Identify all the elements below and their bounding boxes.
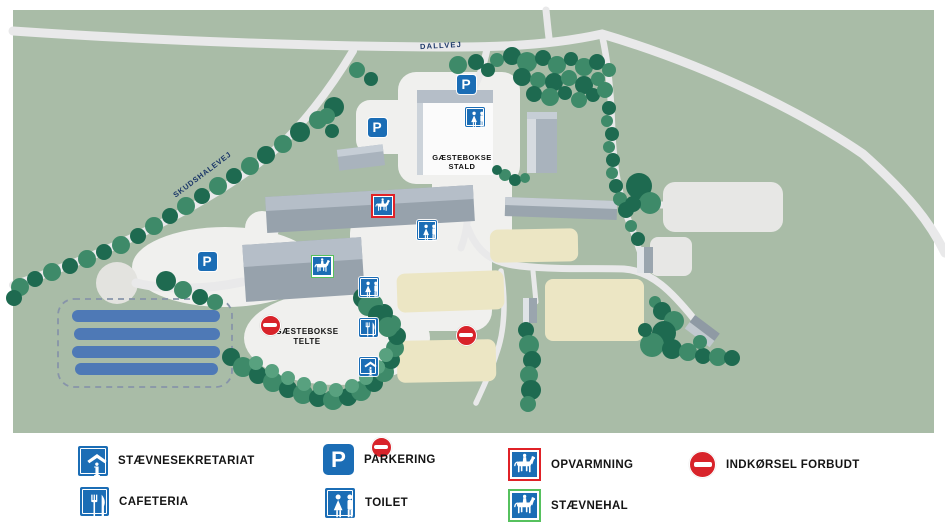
opvarmning-horse-sign-icon — [508, 448, 541, 481]
cafeteria-legend-icon — [80, 487, 109, 516]
parking-sign-icon: P — [323, 444, 354, 475]
info-sign-icon: i — [78, 446, 108, 476]
info-legend-icon: i — [78, 446, 108, 476]
parking-legend-icon: P — [323, 444, 354, 475]
staevnehal-legend-icon — [508, 489, 541, 522]
svg-text:i: i — [93, 460, 100, 480]
legend-item-opvarmning: OPVARMNING — [508, 448, 633, 481]
legend-item-staevnehal: STÆVNEHAL — [508, 489, 628, 522]
opvarmning-legend-icon — [508, 448, 541, 481]
no-entry-legend-icon — [689, 451, 716, 478]
legend-item-staevnesekretariat: i STÆVNESEKRETARIAT — [78, 446, 255, 476]
legend-item-indkoersel-forbudt: INDKØRSEL FORBUDT — [689, 451, 860, 478]
no-entry-sign-icon — [689, 451, 716, 478]
staevnehal-horse-sign-icon — [508, 489, 541, 522]
legend-item-parkering: P PARKERING — [323, 444, 436, 475]
toilet-legend-icon — [325, 488, 355, 518]
legend-item-toilet: TOILET — [325, 488, 408, 518]
legend-item-cafeteria: CAFETERIA — [80, 487, 188, 516]
cafeteria-sign-icon — [80, 487, 109, 516]
venue-map-page: DALLVEJ SKUDSHALEVEJ GÆSTEBOKSE STALD GÆ… — [0, 0, 945, 531]
toilet-sign-icon — [325, 488, 355, 518]
